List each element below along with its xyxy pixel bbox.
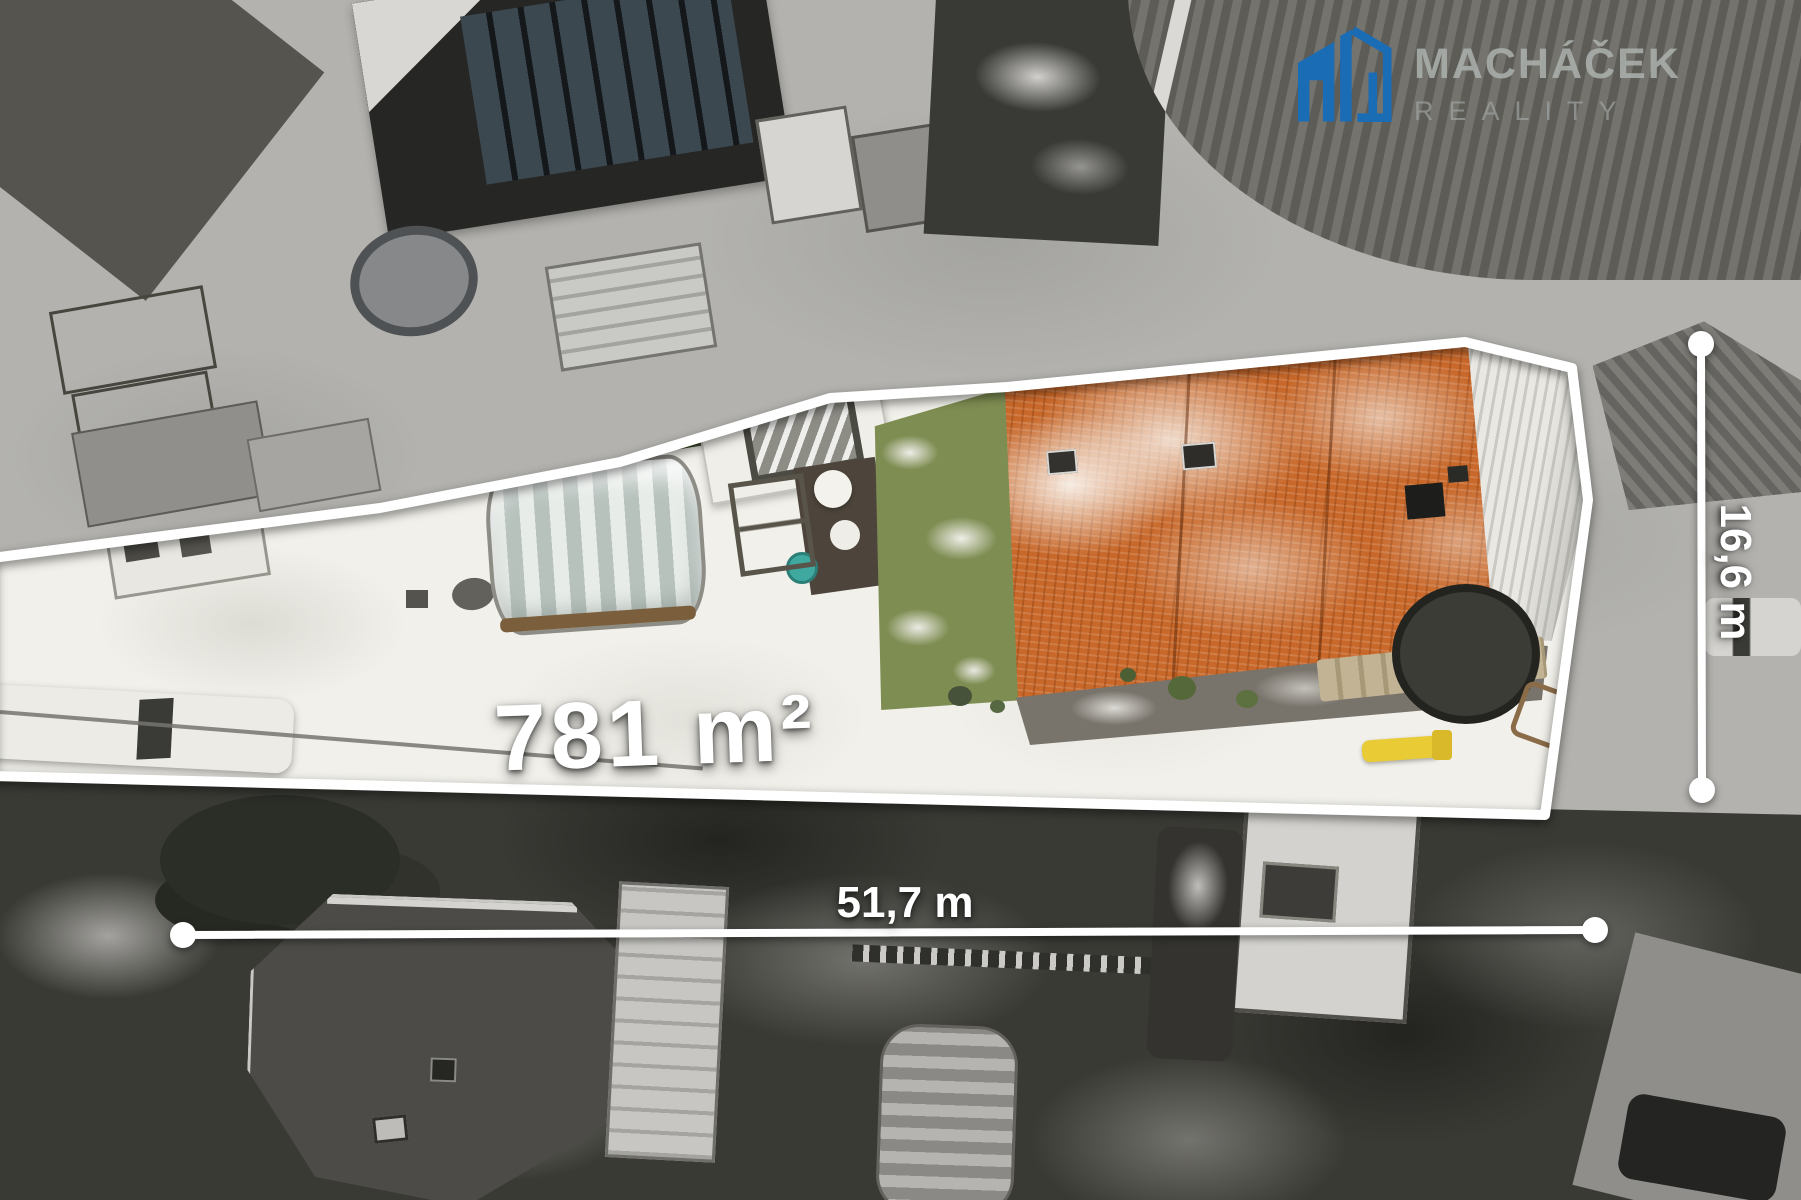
depth-label: 16,6 m: [1710, 504, 1760, 641]
agency-subtitle: REALITY: [1414, 96, 1681, 127]
bush-3: [1120, 668, 1136, 682]
trailer-window: [1259, 862, 1339, 923]
van-white: [0, 684, 295, 774]
greenhouse-neighbor: [545, 242, 718, 371]
garage-bottom-left: [605, 881, 729, 1162]
chimney: [430, 1057, 457, 1082]
bush-5: [990, 700, 1005, 713]
solar-panels: [460, 0, 753, 185]
solar-roof-building: [352, 0, 794, 241]
bush-1: [1168, 676, 1196, 700]
patio-table-snow: [814, 470, 852, 508]
greenhouse-bottom: [875, 1023, 1020, 1200]
trailer-white: [1231, 796, 1422, 1024]
road-top-left: [0, 0, 324, 301]
agency-name: MACHÁČEK: [1414, 40, 1681, 89]
shed-snow-roof: [755, 105, 862, 224]
slide-yellow: [1361, 735, 1440, 762]
chimney-small: [1447, 465, 1468, 483]
agency-watermark: MACHÁČEK REALITY: [1296, 22, 1681, 127]
van-dark: [1146, 826, 1244, 1062]
van-windshield: [136, 698, 173, 760]
chimney-black: [1405, 482, 1446, 519]
garden-box: [406, 590, 428, 608]
neighbor-terrace-left: [247, 418, 382, 512]
round-pool: [341, 216, 486, 347]
bush-2: [1236, 690, 1258, 708]
bush-4: [948, 686, 972, 706]
house-logo-icon: [1296, 22, 1392, 124]
width-label: 51,7 m: [837, 878, 974, 928]
lawn-green: [862, 380, 1022, 710]
roof-window-1: [1046, 449, 1078, 476]
neighbor-roofs-right: [1589, 312, 1801, 513]
aerial-photo: 781 m² 51,7 m 16,6 m MACHÁČEK REALITY: [0, 0, 1801, 1200]
cold-frames: [728, 473, 816, 577]
roof-seam-1: [1170, 328, 1193, 718]
slide-seat: [1432, 730, 1452, 760]
agency-name-block: MACHÁČEK REALITY: [1414, 22, 1681, 127]
roof-window-2: [1181, 442, 1217, 471]
birdbath: [450, 575, 496, 613]
patio-chair-snow: [830, 520, 860, 550]
area-label: 781 m²: [492, 673, 817, 792]
skylight: [372, 1115, 409, 1144]
